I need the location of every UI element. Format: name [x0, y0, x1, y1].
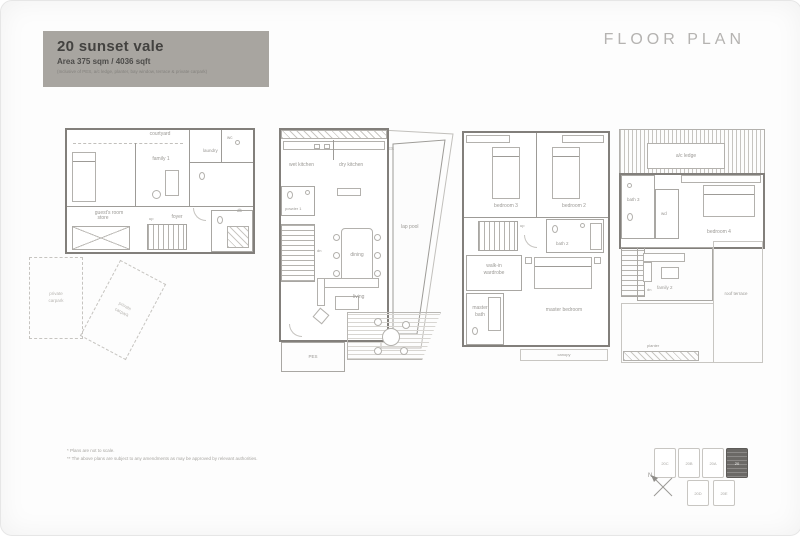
room-label-master-bedroom: master bedroom [546, 307, 582, 314]
bed-icon [703, 185, 755, 217]
label-up: up [149, 216, 153, 221]
room-label-master-bath: master bath [469, 305, 491, 318]
unit-label: 20 [735, 461, 739, 466]
room-label-canopy: canopy [558, 352, 571, 357]
chair-icon [333, 270, 340, 277]
toilet-icon [287, 191, 293, 199]
unit-label: 20A [709, 461, 716, 466]
area-disclaimer: (Inclusive of PES, a/c ledge, planter, b… [57, 69, 255, 74]
plan-attic-storey: a/c ledge bath 3 wd bedroom 4 dn family … [619, 129, 765, 369]
stairs-icon [478, 221, 518, 251]
plan-first-storey: courtyard guest's room family 1 laundry … [65, 128, 255, 254]
keyplan-unit-20b: 20B [678, 448, 700, 478]
room-label-powder: powder 1 [285, 206, 301, 211]
sofa-icon [317, 278, 325, 306]
partition [221, 130, 222, 162]
header-band: 20 sunset vale Area 375 sqm / 4036 sqft … [43, 31, 269, 87]
stair-hatch [227, 226, 249, 248]
island-counter-icon [337, 188, 361, 196]
keyplan-unit-20d: 20D [687, 480, 709, 506]
sofa-icon [643, 262, 652, 282]
outdoor-table-icon [382, 328, 400, 346]
chair-icon [374, 347, 382, 355]
room-label-living: living [353, 294, 364, 301]
room-label-dry-kitchen: dry kitchen [339, 162, 363, 169]
chair-icon [400, 347, 408, 355]
chair-icon [402, 321, 410, 329]
roof-terrace-outline [713, 241, 763, 363]
toilet-icon [217, 216, 223, 224]
label-dn: dn [317, 248, 321, 253]
bed-icon [534, 257, 592, 289]
label-pes-bottom: PES [308, 354, 317, 360]
chair-icon [374, 318, 382, 326]
footnotes: * Plans are not to scale. ** The above p… [67, 447, 258, 463]
bed-icon [72, 152, 96, 202]
chair-icon [374, 234, 381, 241]
wardrobe-icon [466, 135, 510, 143]
room-label-bath-2: bath 2 [556, 241, 569, 247]
bed-icon [552, 147, 580, 199]
side-table-icon [594, 257, 601, 264]
project-title: 20 sunset vale [57, 38, 255, 55]
room-label-store: store [97, 215, 108, 222]
side-table-icon [525, 257, 532, 264]
planter-hatch [623, 351, 699, 361]
keyplan-unit-20-highlighted: 20 [726, 448, 748, 478]
room-label-walkin-wardrobe: walk-in wardrobe [477, 263, 511, 276]
courtyard-edge-line [73, 143, 183, 144]
bed-icon [492, 147, 520, 199]
plan-bedroom-storey: bedroom 3 bedroom 2 up bath 2 walk-in wa… [462, 131, 610, 371]
room-label-family-2: family 2 [657, 285, 673, 291]
partition [333, 140, 334, 160]
sink-icon [314, 144, 320, 149]
unit-label: 20D [694, 491, 701, 496]
ledge-hatch [281, 130, 387, 139]
partition [135, 143, 136, 206]
sink-icon [305, 190, 310, 195]
sofa-icon [165, 170, 179, 196]
plan-living-storey: PES lap pool wet kitchen dry kitchen pow… [279, 128, 457, 374]
wall [655, 189, 679, 239]
partition [536, 133, 537, 217]
footnote-2: ** The above plans are subject to any am… [67, 455, 258, 463]
kitchen-counter-icon [283, 141, 385, 150]
carpark-label: private carpark [43, 291, 69, 305]
bed-pillow-line [73, 161, 95, 162]
stairs-icon [281, 224, 315, 282]
page-title: FLOOR PLAN [604, 31, 745, 49]
project-area: Area 375 sqm / 4036 sqft [57, 57, 255, 66]
room-label-foyer: foyer [171, 214, 182, 221]
north-compass-icon: N [647, 469, 677, 501]
room-label-wd: wd [661, 211, 667, 217]
bed-pillow-line [493, 156, 519, 157]
label-up: up [520, 223, 524, 228]
room-label-bedroom-3: bedroom 3 [494, 203, 518, 210]
room-label-dining: dining [350, 252, 363, 259]
room-label-wc: wc [227, 135, 233, 141]
bathtub-icon [590, 223, 602, 250]
coffee-table-icon [152, 190, 161, 199]
room-label-bedroom-4: bedroom 4 [707, 229, 731, 236]
chair-icon [333, 234, 340, 241]
room-label-lap-pool: lap pool [401, 224, 419, 231]
carpark-label: private carpark [108, 298, 137, 322]
private-carpark-outline: private carpark [29, 257, 83, 339]
sink-icon [324, 144, 330, 149]
chair-icon [374, 252, 381, 259]
bed-pillow-line [704, 194, 754, 195]
stairs-icon [147, 224, 187, 250]
room-label-bedroom-2: bedroom 2 [562, 203, 586, 210]
wardrobe-icon [681, 175, 761, 183]
floor-plan-sheet: 20 sunset vale Area 375 sqm / 4036 sqft … [0, 0, 800, 536]
toilet-icon [472, 327, 478, 335]
coffee-table-icon [661, 267, 679, 279]
bed-pillow-line [535, 266, 591, 267]
unit-label: 20C [661, 461, 668, 466]
label-ac-ledge: a/c ledge [676, 153, 696, 160]
sink-icon [235, 140, 240, 145]
chair-icon [333, 252, 340, 259]
unit-label: 20E [720, 491, 727, 496]
room-label-family: family 1 [152, 156, 169, 163]
toilet-icon [627, 213, 633, 221]
sofa-icon [643, 253, 685, 262]
room-label-courtyard: courtyard [150, 131, 171, 138]
toilet-icon [199, 172, 205, 180]
room-label-wet-kitchen: wet kitchen [289, 162, 314, 169]
keyplan-unit-20a: 20A [702, 448, 724, 478]
keyplan-unit-20e: 20E [713, 480, 735, 506]
room-label-bath-3: bath 3 [627, 197, 640, 203]
partition [464, 217, 608, 218]
room-label-laundry: laundry [203, 148, 218, 154]
ac-ledge-box: a/c ledge [647, 143, 725, 169]
partition [67, 206, 253, 207]
sofa-icon [323, 278, 379, 288]
wall [281, 186, 315, 216]
chair-icon [374, 270, 381, 277]
room-label-planter: planter [647, 343, 659, 348]
sink-icon [627, 183, 632, 188]
store-cross-icon [72, 226, 130, 250]
toilet-icon [552, 225, 558, 233]
partition [189, 130, 190, 206]
private-carpark-outline: private carpark [80, 260, 166, 360]
room-label-roof-terrace: roof terrace [724, 291, 747, 297]
partition [189, 162, 253, 163]
bed-pillow-line [553, 156, 579, 157]
unit-label: 20B [685, 461, 692, 466]
footnote-1: * Plans are not to scale. [67, 447, 258, 455]
sink-icon [580, 223, 585, 228]
wardrobe-icon [562, 135, 604, 143]
